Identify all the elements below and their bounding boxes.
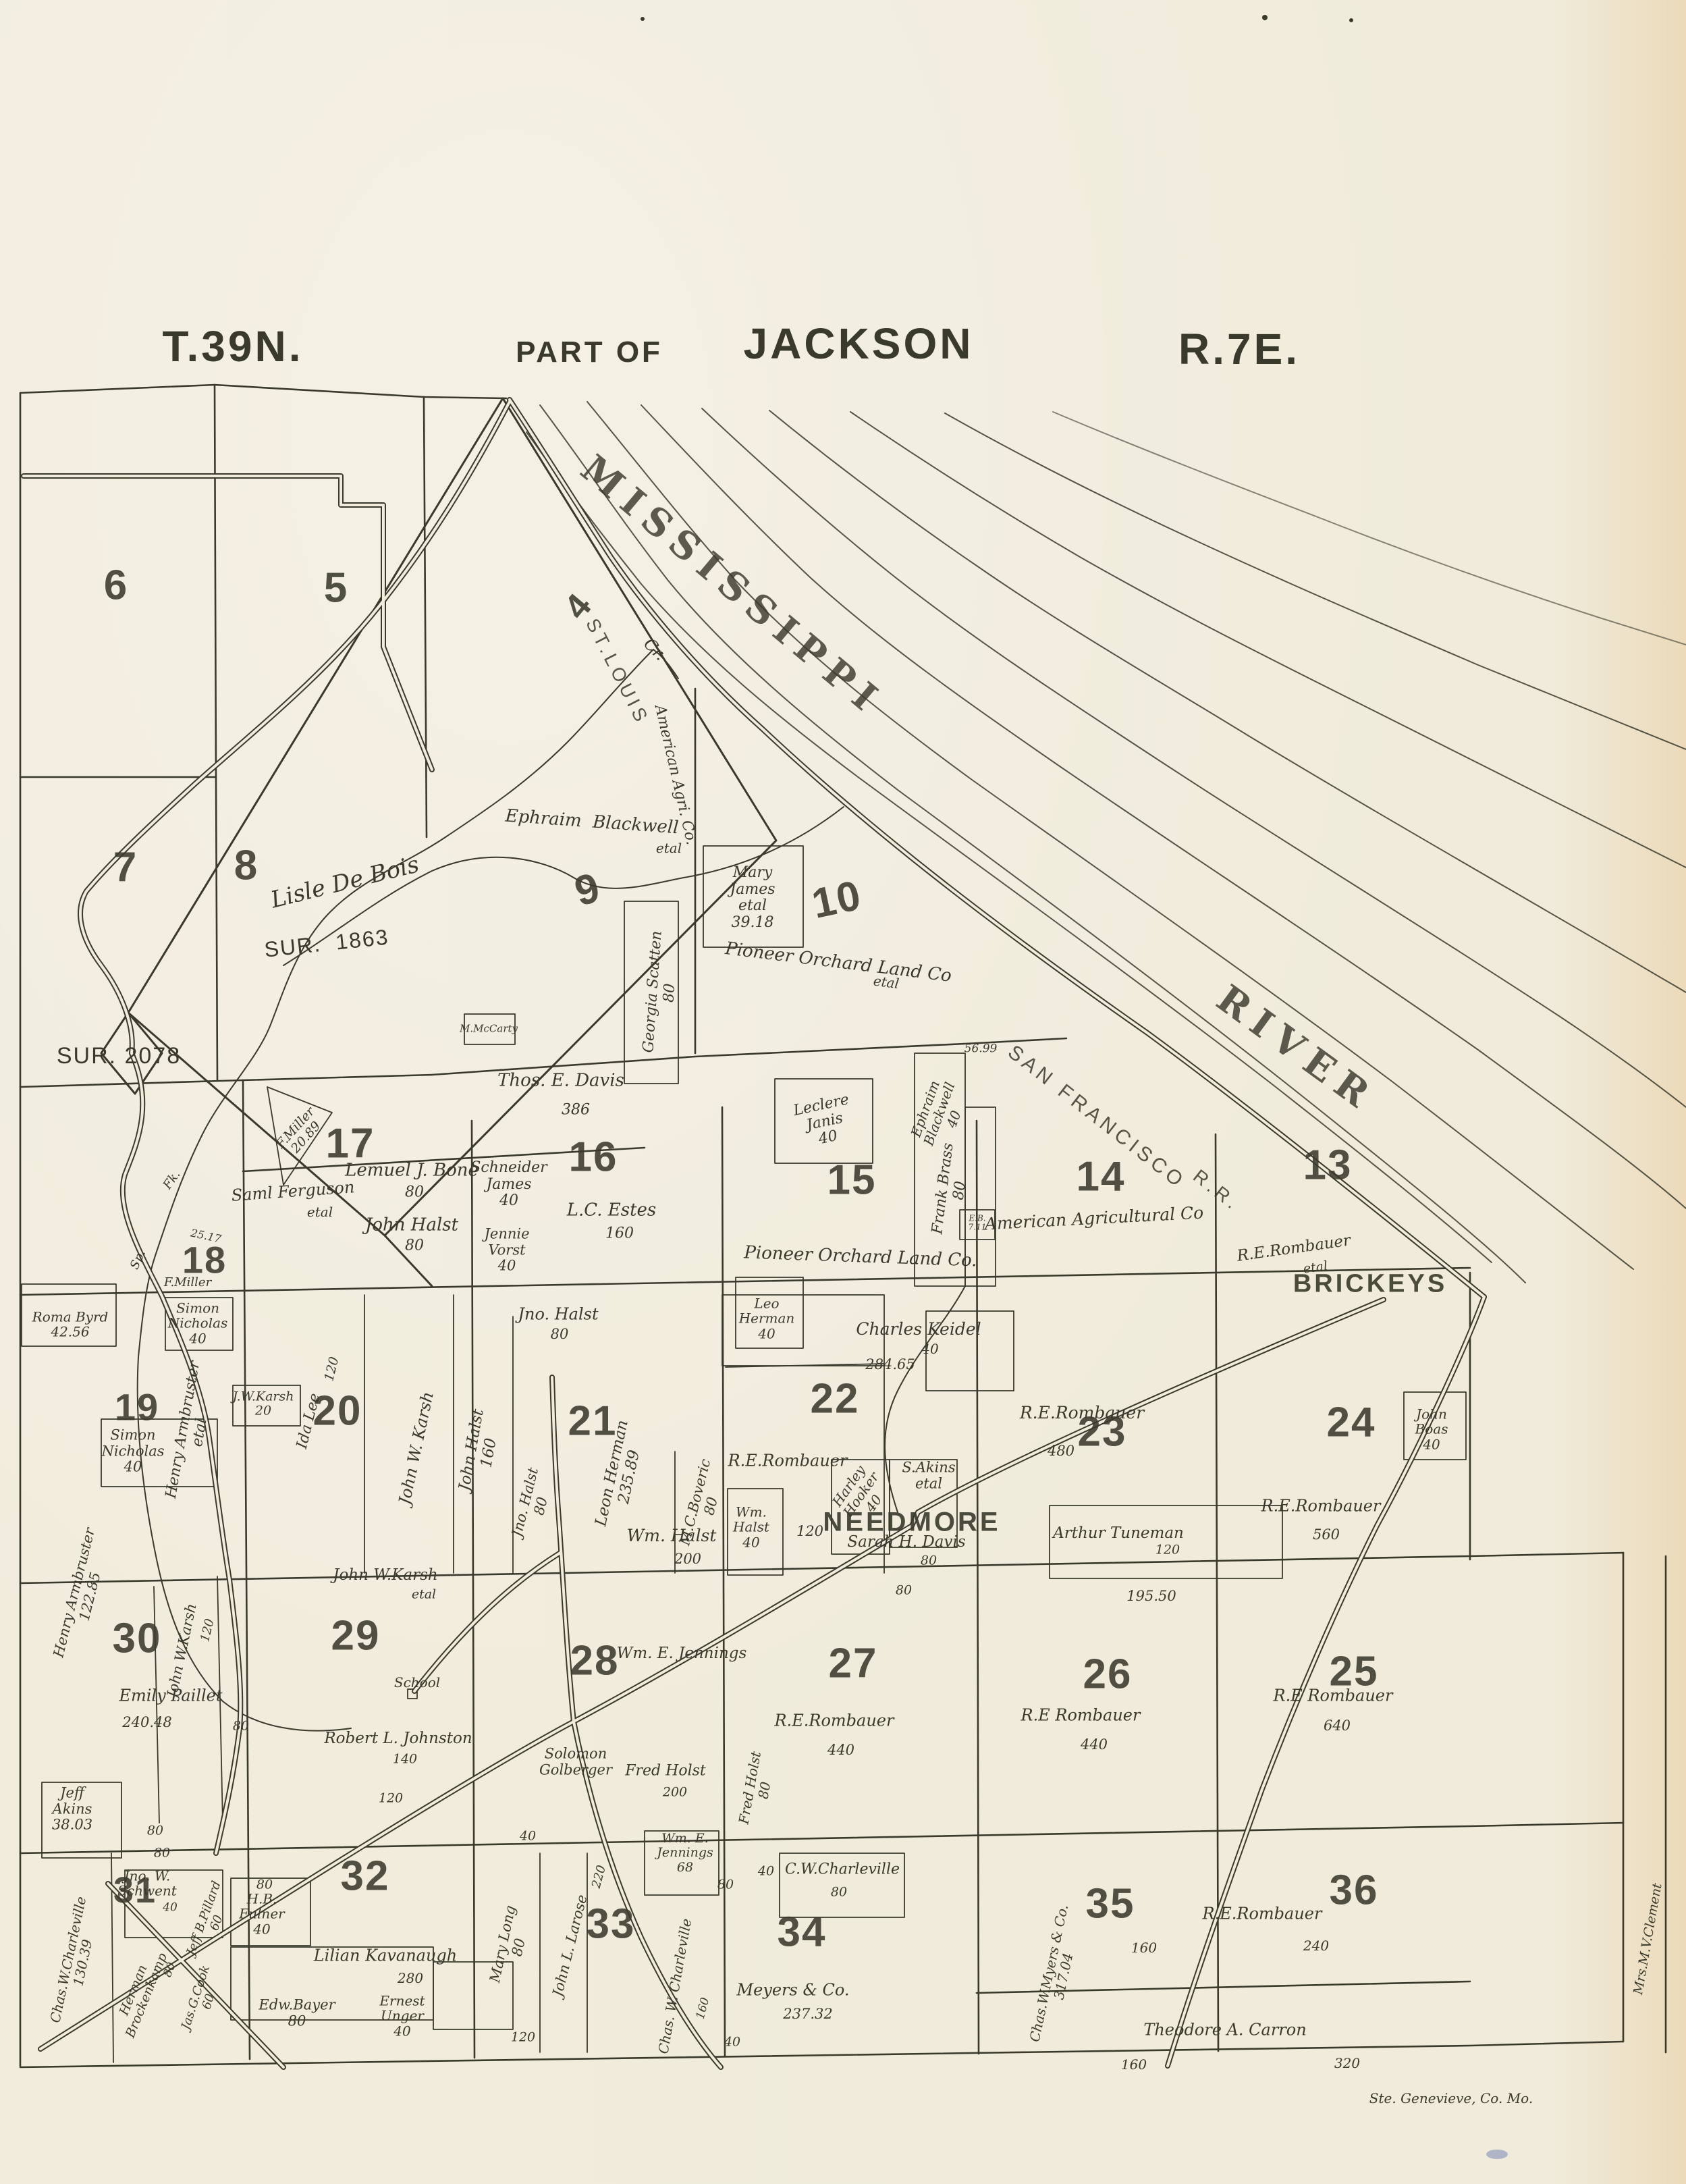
owner-sarah-davis: Sarah H. Davis (847, 1534, 965, 1551)
owner-wm-jennings-s: Wm. E. Jennings 68 (657, 1832, 713, 1875)
value-120-29: 120 (379, 1791, 403, 1805)
section-34: 34 (778, 1909, 827, 1955)
section-32: 32 (341, 1853, 390, 1899)
owner-re-rombauer-23-acres: 480 (1048, 1443, 1075, 1460)
owner-lilian-kavanaugh: Lilian Kavanaugh (314, 1947, 458, 1965)
section-8: 8 (234, 842, 259, 888)
owner-lc-estes: L.C. Estes (567, 1200, 657, 1220)
owner-edw-bayer: Edw.Bayer 80 (259, 1997, 335, 2029)
value-195-50: 195.50 (1126, 1589, 1176, 1605)
section-28: 28 (570, 1637, 620, 1684)
owner-theodore-carron-320: 320 (1334, 2056, 1360, 2071)
owner-simon-nicholas-18: Simon Nicholas 40 (168, 1300, 228, 1346)
owner-john-halst-17-acres: 80 (405, 1238, 424, 1255)
owner-saml-ferguson-etal: etal (307, 1204, 333, 1219)
owner-re-rombauer-24-acres: 560 (1313, 1527, 1340, 1543)
owner-john-boas: John Boas 40 (1415, 1406, 1448, 1451)
section-7: 7 (113, 844, 138, 890)
section-27: 27 (829, 1640, 878, 1686)
owner-jno-schwent: Jno. W. Schwent (117, 1869, 177, 1899)
owner-re-rombauer-36: R.E.Rombauer (1203, 1905, 1322, 1923)
section-15: 15 (827, 1156, 877, 1203)
owner-re-rombauer-36-240: 240 (1303, 1938, 1329, 1953)
owner-mary-james: Mary James etal 39.18 (730, 865, 775, 932)
title-township: T.39N. (163, 321, 304, 371)
owner-pioneer-orchard-10-etal: etal (873, 974, 900, 992)
owner-re-rombauer-22-acres: 120 (796, 1524, 823, 1540)
section-19: 19 (115, 1387, 159, 1429)
owner-charles-keidel: Charles Keidel (856, 1320, 981, 1339)
title-area-name: JACKSON (744, 319, 974, 369)
section-24: 24 (1327, 1399, 1376, 1445)
value-40-33s: 40 (724, 2035, 740, 2049)
section-29: 29 (331, 1612, 381, 1659)
section-30: 30 (113, 1615, 162, 1661)
owner-re-rombauer-24: R.E.Rombauer (1261, 1497, 1381, 1516)
plat-map-page: T.39N. PART OF JACKSON R.7E. MISSISSIPPI… (0, 0, 1686, 2184)
owner-fred-holst-28: Fred Holst (625, 1763, 705, 1780)
owner-fred-holst-28-acres: 200 (663, 1785, 687, 1799)
owner-arthur-tuneman-acres: 120 (1155, 1543, 1180, 1557)
section-6: 6 (104, 562, 128, 608)
owner-thos-davis: Thos. E. Davis (497, 1071, 624, 1090)
owner-robert-johnston-acres: 140 (393, 1752, 417, 1766)
owner-m-mccarty: M.McCarty (460, 1023, 518, 1035)
section-36: 36 (1330, 1867, 1379, 1913)
owner-re-rombauer-36-160: 160 (1131, 1940, 1157, 1955)
owner-re-rombauer-26: R.E Rombauer (1021, 1707, 1141, 1725)
section-16: 16 (569, 1134, 618, 1180)
section-10: 10 (808, 872, 866, 928)
owner-charles-keidel-acres: 284.65 (865, 1357, 915, 1373)
owner-wm-halst-acres: 200 (674, 1551, 701, 1568)
owner-re-rombauer-23: R.E.Rombauer (1020, 1404, 1144, 1422)
owner-re-rombauer-26-acres: 440 (1081, 1737, 1108, 1753)
owner-lemuel-bone-acres: 80 (405, 1185, 424, 1202)
owner-jennie-vorst: Jennie Vorst 40 (484, 1227, 529, 1275)
value-40-34: 40 (758, 1864, 774, 1878)
owner-jw-karsh: J.W.Karsh 20 (232, 1390, 294, 1419)
value-80-30e: 80 (233, 1719, 249, 1733)
section-13: 13 (1303, 1142, 1353, 1188)
owner-roma-byrd: Roma Byrd 42.56 (32, 1310, 109, 1340)
owner-emily-paillet: Emily Paillet (119, 1687, 222, 1705)
owner-wm-halst-40: Wm. Halst 40 (733, 1504, 769, 1549)
owner-emily-paillet-acres: 240.48 (122, 1715, 171, 1731)
owner-meyers-co-acres: 237.32 (783, 2006, 832, 2023)
owner-re-rombauer-27-acres: 440 (827, 1742, 854, 1759)
owner-re-rombauer-25: R.E Rombauer (1274, 1687, 1393, 1705)
owner-re-rombauer-27: R.E.Rombauer (775, 1712, 894, 1730)
section-grid (20, 385, 1666, 2067)
survey-2078: SUR. 2078 (57, 1043, 181, 1069)
owner-charles-keidel-40: 40 (921, 1341, 938, 1356)
owner-ephraim-blackwell-etal: etal (656, 841, 682, 855)
owner-lilian-kavanaugh-acres: 280 (398, 1971, 423, 1986)
school: School (394, 1675, 440, 1690)
section-33: 33 (587, 1900, 636, 1947)
owner-john-w-karsh-29-etal: etal (412, 1587, 436, 1601)
owner-solomon-golberger: Solomon Golberger (539, 1746, 612, 1778)
owner-robert-johnston: Robert L. Johnston (324, 1730, 472, 1748)
value-56-99: 56.99 (964, 1042, 998, 1055)
owner-wm-halst: Wm. Halst (627, 1526, 717, 1545)
section-35: 35 (1086, 1880, 1135, 1927)
owner-s-akins: S.Akins etal (902, 1460, 955, 1491)
owner-sarah-davis-80a: 80 (921, 1553, 937, 1568)
value-120-33: 120 (511, 2030, 535, 2044)
owner-wm-jennings-28: Wm. E. Jennings (617, 1645, 747, 1663)
value-80-28s: 80 (717, 1877, 734, 1892)
owner-f-miller: F.Miller (164, 1276, 211, 1289)
owner-theodore-carron-160: 160 (1121, 2057, 1147, 2072)
value-80-akins: 80 (147, 1823, 163, 1838)
owner-jno-halst-h-acres: 80 (551, 1327, 569, 1343)
owner-john-w-karsh-29: John W.Karsh (333, 1567, 437, 1584)
owner-thos-davis-acres: 386 (562, 1102, 590, 1119)
owner-schneider-james: Schneider James 40 (470, 1160, 547, 1210)
section-5: 5 (324, 564, 348, 611)
map-credit: Ste. Genevieve, Co. Mo. (1369, 2091, 1533, 2106)
owner-re-rombauer-25-acres: 640 (1324, 1718, 1351, 1734)
owner-arthur-tuneman: Arthur Tuneman (1053, 1525, 1184, 1543)
owner-lc-estes-acres: 160 (605, 1226, 634, 1243)
value-40-33n: 40 (520, 1829, 536, 1843)
title-part-of: PART OF (516, 336, 663, 369)
owner-meyers-co: Meyers & Co. (737, 1981, 850, 2000)
section-22: 22 (811, 1375, 860, 1422)
owner-sarah-davis-80b: 80 (896, 1583, 912, 1597)
value-80-31a: 80 (154, 1846, 170, 1860)
owner-jno-schwent-acres: 40 (163, 1901, 178, 1914)
owner-re-rombauer-22: R.E.Rombauer (728, 1452, 848, 1470)
owner-lemuel-bone: Lemuel J. Bone (345, 1161, 479, 1180)
section-26: 26 (1083, 1651, 1133, 1697)
owner-cw-charleville-34: C.W.Charleville (785, 1862, 900, 1879)
owner-jno-halst-h: Jno. Halst (518, 1306, 598, 1324)
owner-john-halst-17: John Halst (365, 1215, 458, 1235)
owner-hb-fulner: H.B. Fulner 40 (239, 1891, 284, 1936)
owner-jeff-akins: Jeff Akins 38.03 (52, 1786, 92, 1834)
owner-simon-nicholas-19: Simon Nicholas 40 (101, 1428, 164, 1476)
owner-cw-charleville-34-acres: 80 (831, 1885, 847, 1899)
title-range: R.7E. (1178, 324, 1300, 374)
owner-ernest-unger: Ernest Unger 40 (379, 1993, 425, 2038)
owner-theodore-carron: Theodore A. Carron (1143, 2021, 1306, 2040)
section-14: 14 (1077, 1153, 1126, 1200)
owner-leo-herman: Leo Herman 40 (739, 1296, 795, 1341)
